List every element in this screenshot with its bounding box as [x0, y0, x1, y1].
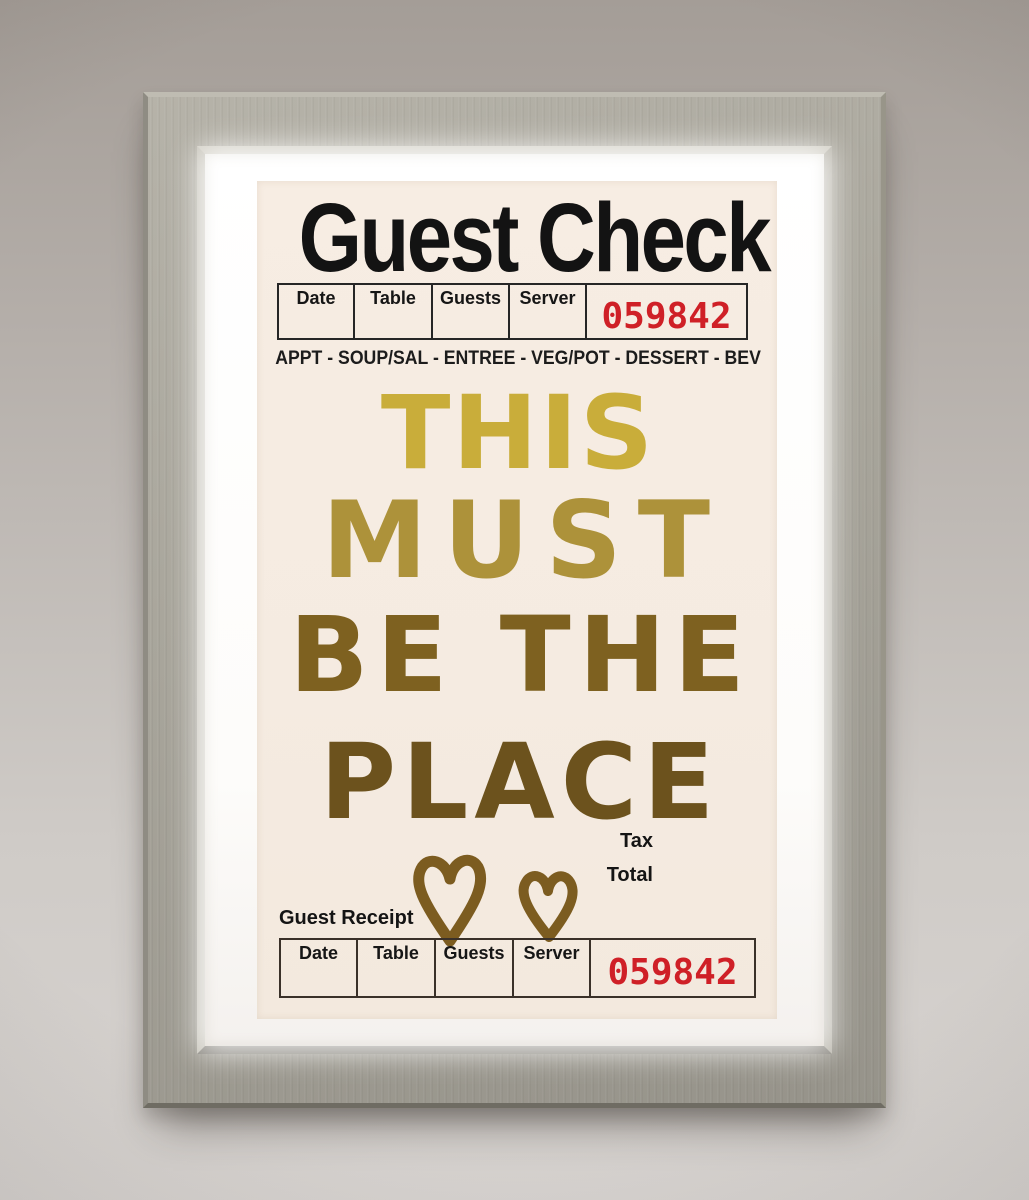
receipt-cell-server: Server — [514, 940, 591, 996]
check-header-table: Date Table Guests Server 059842 — [277, 283, 748, 340]
receipt-table: Date Table Guests Server 059842 — [279, 938, 756, 998]
receipt-label-guests: Guests — [443, 940, 504, 965]
header-label-table: Table — [370, 285, 416, 310]
wall: Guest Check Date Table Guests Server — [0, 0, 1029, 1200]
receipt-label-table: Table — [373, 940, 419, 965]
frame-mat: Guest Check Date Table Guests Server — [205, 154, 824, 1046]
receipt-label-date: Date — [299, 940, 338, 965]
message-line-place: PLACE — [257, 730, 777, 834]
receipt-cell-number: 059842 — [591, 940, 754, 996]
receipt-cell-guests: Guests — [436, 940, 514, 996]
header-label-server: Server — [519, 285, 575, 310]
receipt-cell-table: Table — [358, 940, 436, 996]
check-number: 059842 — [601, 299, 731, 335]
hearts-doodle — [412, 849, 587, 949]
heart-icon — [419, 860, 481, 941]
header-cell-table: Table — [355, 285, 433, 338]
header-label-guests: Guests — [440, 285, 501, 310]
picture-frame: Guest Check Date Table Guests Server — [143, 92, 886, 1108]
header-cell-date: Date — [279, 285, 355, 338]
message-line-this: THIS — [257, 383, 777, 485]
header-label-date: Date — [296, 285, 335, 310]
message-line-must: MUST — [257, 488, 777, 594]
receipt-number: 059842 — [607, 955, 737, 991]
receipt-label-server: Server — [523, 940, 579, 965]
check-title: Guest Check — [299, 189, 736, 286]
header-cell-guests: Guests — [433, 285, 510, 338]
receipt-cell-date: Date — [281, 940, 358, 996]
heart-icon — [524, 876, 573, 937]
menu-courses-line: APPT - SOUP/SAL - ENTREE - VEG/POT - DES… — [275, 349, 759, 369]
guest-check-print: Guest Check Date Table Guests Server — [257, 181, 777, 1019]
receipt-label: Guest Receipt — [279, 907, 413, 929]
header-cell-number: 059842 — [587, 285, 746, 338]
message-line-be-the: BE THE — [257, 603, 777, 707]
header-cell-server: Server — [510, 285, 587, 338]
